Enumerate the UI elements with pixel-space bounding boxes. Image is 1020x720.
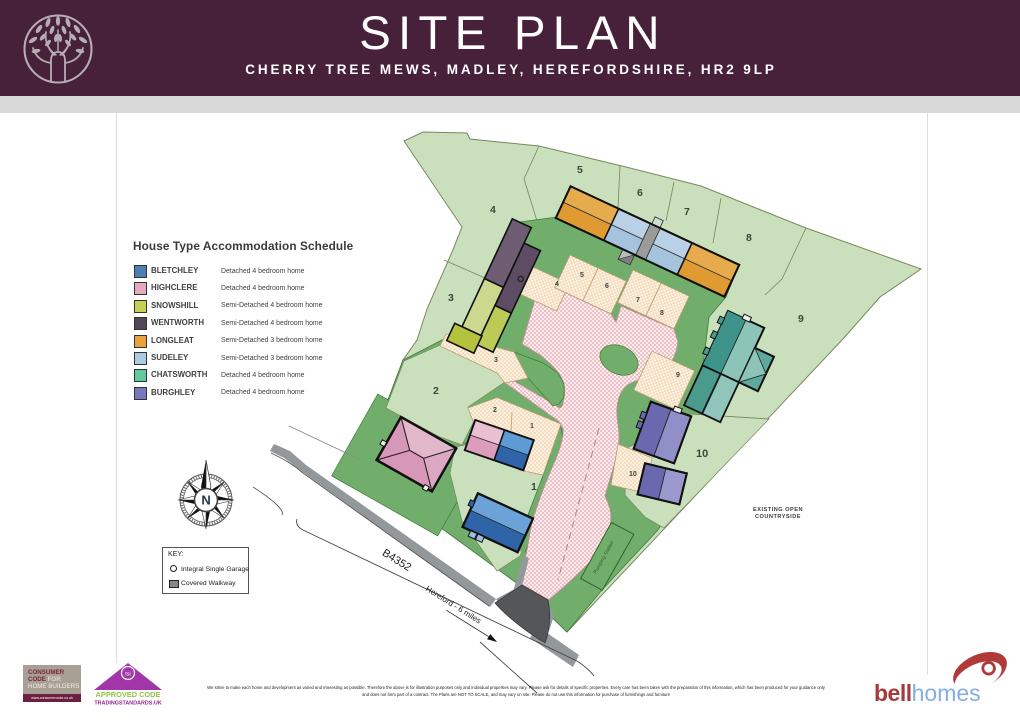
svg-text:7: 7: [636, 297, 640, 304]
svg-text:3: 3: [494, 357, 498, 364]
svg-text:N: N: [201, 493, 210, 508]
svg-text:7: 7: [684, 206, 690, 218]
svg-text:1: 1: [531, 481, 537, 493]
svg-text:TRADINGSTANDARDS.UK: TRADINGSTANDARDS.UK: [94, 701, 161, 707]
svg-text:1: 1: [530, 423, 534, 430]
svg-text:B4352: B4352: [380, 547, 413, 574]
svg-text:6: 6: [637, 187, 643, 199]
svg-text:6: 6: [605, 283, 609, 290]
svg-text:9: 9: [798, 313, 804, 325]
svg-text:10: 10: [629, 471, 637, 478]
svg-text:9: 9: [676, 372, 680, 379]
svg-text:EXISTING OPEN: EXISTING OPEN: [753, 507, 803, 513]
svg-text:4: 4: [555, 281, 559, 288]
svg-text:APPROVED CODE: APPROVED CODE: [96, 690, 161, 699]
svg-text:4: 4: [490, 204, 496, 216]
svg-text:8: 8: [746, 232, 752, 244]
svg-text:tsi: tsi: [125, 672, 131, 678]
svg-text:COUNTRYSIDE: COUNTRYSIDE: [755, 514, 801, 520]
svg-text:5: 5: [577, 164, 583, 176]
svg-text:3: 3: [448, 292, 454, 304]
svg-text:2: 2: [493, 407, 497, 414]
svg-text:5: 5: [580, 272, 584, 279]
svg-text:10: 10: [696, 448, 708, 460]
svg-text:8: 8: [660, 310, 664, 317]
svg-text:bellhomes: bellhomes: [874, 680, 981, 706]
svg-text:2: 2: [433, 385, 439, 397]
